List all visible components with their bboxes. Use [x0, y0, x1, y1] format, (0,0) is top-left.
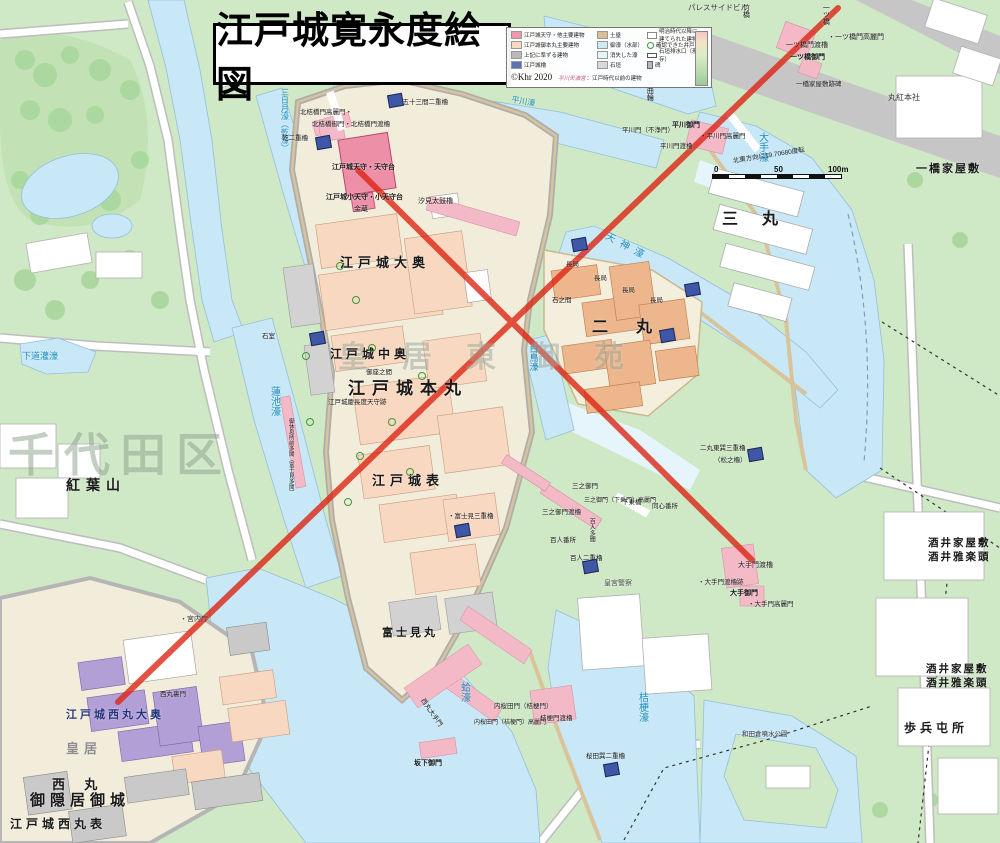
shrine-note-rest: ：江戸時代以前の建物: [587, 76, 642, 82]
legend-label: 消失した濠: [610, 51, 638, 59]
legend-row: 消失した濠: [597, 51, 647, 59]
legend-swatch: [511, 61, 522, 69]
scale-bar: 北東方向に19.70680度転 0 50 100m: [710, 165, 860, 179]
legend-swatch: [647, 42, 654, 49]
scale-tick: 100m: [828, 165, 848, 174]
legend-row: 碑: [647, 61, 699, 69]
legend-col-terrain: 土塁御濠（水部）消失した濠石垣: [597, 31, 647, 69]
legend-col-symbols: 明治時代以降に建てられた建物確認できた井戸石垣排水口（現存）碑: [647, 31, 699, 69]
legend-row: 上記に準ずる建物: [511, 51, 597, 59]
legend-swatch: [597, 41, 608, 49]
legend-box: 江戸城天守・他主要建物江戸城御本丸主要建物上記に準ずる建物江戸城櫓 土塁御濠（水…: [506, 27, 712, 88]
legend-swatch: [647, 61, 653, 69]
legend-row: 石垣: [597, 61, 647, 69]
edo-castle-map: 千代田区皇居東御苑江戸城大奥江戸城中奥江戸城本丸江戸城表富士見丸二 丸三 丸紅葉…: [0, 0, 1000, 843]
legend-note: 平川天満宮：江戸時代以前の建物: [558, 74, 642, 82]
legend-row: 江戸城天守・他主要建物: [511, 31, 597, 39]
legend-swatch: [511, 41, 522, 49]
legend-label: 江戸城天守・他主要建物: [524, 31, 585, 39]
legend-swatch: [647, 32, 657, 39]
legend-swatch: [597, 51, 608, 59]
legend-row: 江戸城櫓: [511, 61, 597, 69]
legend-row: 御濠（水部）: [597, 41, 647, 49]
legend-swatch: [511, 51, 522, 59]
legend-swatch: [511, 31, 522, 39]
scale-strip: [712, 174, 842, 179]
legend-columns: 江戸城天守・他主要建物江戸城御本丸主要建物上記に準ずる建物江戸城櫓 土塁御濠（水…: [511, 31, 709, 69]
shrine-note-name: 平川天満宮: [558, 76, 586, 82]
legend-row: 明治時代以降に建てられた建物: [647, 31, 699, 39]
basemap-svg: [0, 0, 1000, 843]
legend-label: 石垣: [610, 61, 621, 69]
scale-tick: 50: [774, 165, 783, 174]
legend-swatch: [597, 31, 608, 39]
map-title-box: 江戸城寛永度絵図: [213, 23, 511, 85]
legend-label: 碑: [655, 61, 661, 69]
scale-tick: 0: [714, 165, 718, 174]
copyright-text: ©Khr 2020: [511, 72, 552, 82]
legend-bottom-row: ©Khr 2020 平川天満宮：江戸時代以前の建物: [511, 72, 709, 82]
legend-label: 江戸城櫓: [524, 61, 546, 69]
legend-col-buildings: 江戸城天守・他主要建物江戸城御本丸主要建物上記に準ずる建物江戸城櫓: [511, 31, 597, 69]
legend-label: 御濠（水部）: [610, 41, 643, 49]
map-title: 江戸城寛永度絵図: [216, 0, 508, 108]
legend-swatch: [597, 61, 608, 69]
legend-row: 土塁: [597, 31, 647, 39]
legend-label: 土塁: [610, 31, 621, 39]
legend-swatch: [647, 53, 657, 58]
scale-ticks: 0 50 100m: [710, 165, 860, 174]
legend-row: 石垣排水口（現存）: [647, 51, 699, 59]
era-scale-strip: [695, 31, 708, 86]
legend-row: 江戸城御本丸主要建物: [511, 41, 597, 49]
legend-label: 上記に準ずる建物: [524, 51, 568, 59]
legend-label: 江戸城御本丸主要建物: [524, 41, 579, 49]
